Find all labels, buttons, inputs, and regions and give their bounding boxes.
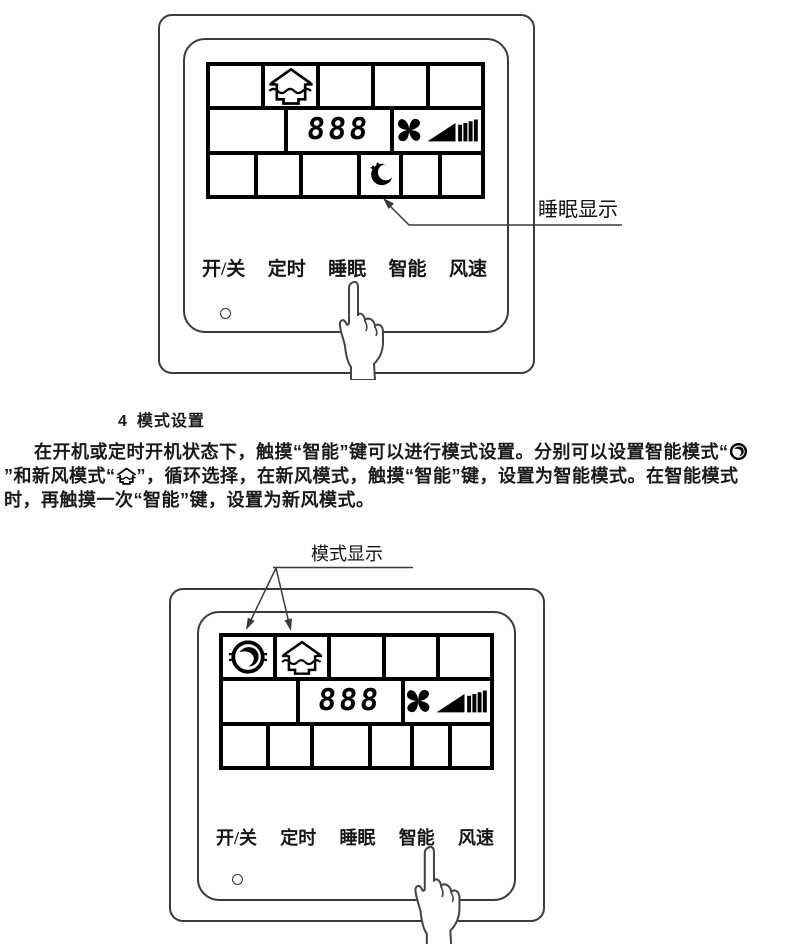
section-title: 模式设置 xyxy=(137,413,205,430)
sleep-callout-label: 睡眠显示 xyxy=(538,193,618,222)
lcd-cell-fan-speed xyxy=(394,110,481,150)
lcd-cell-empty xyxy=(320,66,371,106)
lcd-cell-empty xyxy=(223,681,296,721)
lcd-cell-fresh-air-mode xyxy=(277,637,327,677)
sleep-key[interactable]: 睡眠 xyxy=(339,824,375,850)
bottom-lcd-display: 888 xyxy=(219,633,494,770)
lcd-cell-temperature: 888 xyxy=(300,681,401,721)
bottom-lcd-row3 xyxy=(223,726,490,766)
lcd-cell-empty xyxy=(375,66,426,106)
fan-speed-icon xyxy=(396,115,480,145)
power-key[interactable]: 开/关 xyxy=(216,824,257,850)
lcd-cell-empty xyxy=(258,155,298,195)
lcd-cell-smart-mode xyxy=(223,637,273,677)
fan-speed-icon xyxy=(405,686,489,716)
lcd-cell-empty xyxy=(223,726,266,766)
top-lcd-display: 888 xyxy=(206,62,485,199)
top-lcd-row3 xyxy=(210,155,481,195)
lcd-cell-empty xyxy=(303,155,357,195)
lcd-cell-temperature: 888 xyxy=(288,110,391,150)
fresh-air-house-icon xyxy=(267,66,315,106)
fresh-air-house-icon xyxy=(116,467,137,485)
lcd-cell-empty xyxy=(440,637,490,677)
lcd-cell-fan-speed xyxy=(405,681,490,721)
body-text: 在开机或定时开机状态下，触摸“智能”键可以进行模式设置。分别可以设置智能模式“ xyxy=(34,442,729,462)
lcd-cell-empty xyxy=(270,726,310,766)
bottom-lcd-row1 xyxy=(223,637,490,677)
smart-key[interactable]: 智能 xyxy=(389,254,427,281)
fan-speed-key[interactable]: 风速 xyxy=(449,254,487,281)
lcd-cell-empty xyxy=(331,637,381,677)
lcd-cell-fresh-air-mode xyxy=(265,66,316,106)
segment-display: 888 xyxy=(317,686,383,716)
timer-key[interactable]: 定时 xyxy=(280,824,316,850)
lcd-cell-empty xyxy=(403,155,438,195)
bottom-lcd-row2: 888 xyxy=(223,681,490,721)
lcd-cell-empty xyxy=(372,726,410,766)
moon-stars-icon xyxy=(367,161,393,189)
power-key[interactable]: 开/关 xyxy=(202,254,245,281)
body-paragraph: 在开机或定时开机状态下，触摸“智能”键可以进行模式设置。分别可以设置智能模式“”… xyxy=(4,440,770,512)
power-led xyxy=(232,874,243,885)
top-lcd-row1 xyxy=(210,66,481,106)
lcd-cell-empty xyxy=(414,726,448,766)
smart-mode-swirl-icon xyxy=(228,638,268,676)
section-heading: 4模式设置 xyxy=(118,407,214,431)
lcd-cell-empty xyxy=(452,726,490,766)
power-led xyxy=(220,308,231,319)
pointing-hand-icon xyxy=(330,280,390,380)
segment-display: 888 xyxy=(306,115,372,145)
lcd-cell-empty xyxy=(442,155,481,195)
manual-page: 888 xyxy=(0,0,790,944)
lcd-cell-empty xyxy=(210,66,261,106)
top-lcd-row2: 888 xyxy=(210,110,481,150)
lcd-cell-empty xyxy=(430,66,481,106)
lcd-cell-empty xyxy=(386,637,436,677)
body-text: ”和新风模式“ xyxy=(4,466,116,486)
lcd-cell-empty xyxy=(314,726,367,766)
timer-key[interactable]: 定时 xyxy=(268,254,306,281)
mode-callout-label: 模式显示 xyxy=(311,540,383,566)
sleep-key[interactable]: 睡眠 xyxy=(328,254,366,281)
lcd-cell-empty xyxy=(210,155,254,195)
pointing-hand-icon xyxy=(404,845,468,944)
lcd-cell-empty xyxy=(210,110,284,150)
lcd-cell-sleep xyxy=(361,155,400,195)
section-number: 4 xyxy=(118,413,128,430)
smart-mode-swirl-icon xyxy=(729,442,748,461)
top-key-row: 开/关 定时 睡眠 智能 风速 xyxy=(202,254,487,281)
fresh-air-house-icon xyxy=(280,639,324,676)
